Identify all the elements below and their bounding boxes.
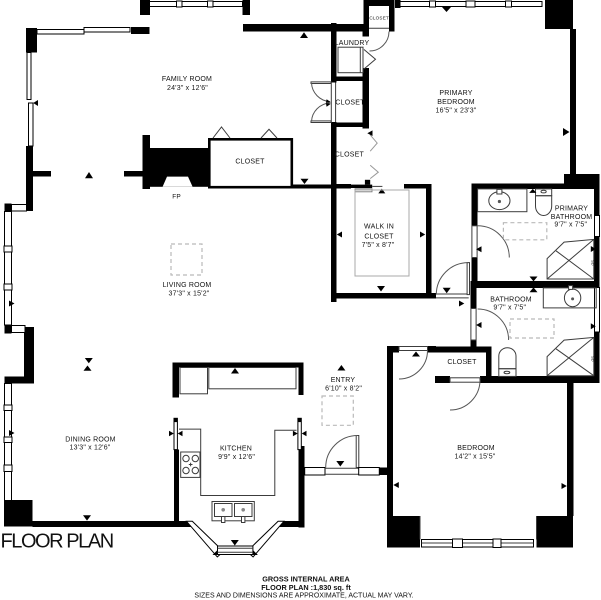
svg-text:CLOSET: CLOSET xyxy=(235,159,265,166)
svg-text:CLOSET: CLOSET xyxy=(335,151,365,158)
svg-text:SD: SD xyxy=(591,356,596,362)
svg-text:PRIMARY: PRIMARY xyxy=(439,90,472,97)
svg-text:LAUNDRY: LAUNDRY xyxy=(335,40,370,47)
svg-text:BEDROOM: BEDROOM xyxy=(437,99,475,106)
svg-text:CLOSET: CLOSET xyxy=(335,100,365,107)
svg-text:ENTRY: ENTRY xyxy=(331,377,356,384)
svg-text:9'7" x 7'5": 9'7" x 7'5" xyxy=(554,222,587,229)
svg-text:9'7" x 7'5": 9'7" x 7'5" xyxy=(493,304,526,311)
svg-text:BATHROOM: BATHROOM xyxy=(551,214,593,221)
svg-text:9'9" x 12'6": 9'9" x 12'6" xyxy=(218,454,255,461)
svg-text:37'3" x 15'2": 37'3" x 15'2" xyxy=(169,290,210,297)
svg-text:16'5" x 23'3": 16'5" x 23'3" xyxy=(436,108,477,115)
svg-text:WALK IN: WALK IN xyxy=(364,224,394,231)
svg-text:SIZES AND DIMENSIONS ARE APPRO: SIZES AND DIMENSIONS ARE APPROXIMATE, AC… xyxy=(194,593,413,600)
svg-text:FP: FP xyxy=(172,194,181,201)
svg-text:KITCHEN: KITCHEN xyxy=(220,446,252,453)
svg-text:14'2" x 15'5": 14'2" x 15'5" xyxy=(455,454,496,461)
svg-text:PRIMARY: PRIMARY xyxy=(555,206,588,213)
svg-text:BEDROOM: BEDROOM xyxy=(457,445,495,452)
svg-text:FLOOR PLAN: FLOOR PLAN xyxy=(1,531,113,553)
svg-text:LIVING ROOM: LIVING ROOM xyxy=(163,282,212,289)
svg-text:FLOOR PLAN :1,830 sq. ft: FLOOR PLAN :1,830 sq. ft xyxy=(261,583,351,592)
svg-text:6'10" x 8'2": 6'10" x 8'2" xyxy=(325,386,362,393)
svg-text:24'3" x 12'6": 24'3" x 12'6" xyxy=(167,85,208,92)
svg-text:FAMILY ROOM: FAMILY ROOM xyxy=(162,76,212,83)
svg-text:CLOSET: CLOSET xyxy=(364,234,394,241)
svg-text:BATHROOM: BATHROOM xyxy=(490,297,532,304)
svg-text:CLOSET: CLOSET xyxy=(369,16,389,21)
svg-text:13'3" x 12'6": 13'3" x 12'6" xyxy=(70,445,111,452)
svg-text:DINING ROOM: DINING ROOM xyxy=(65,436,115,443)
svg-text:7'5" x 8'7": 7'5" x 8'7" xyxy=(362,242,395,249)
svg-text:SD: SD xyxy=(591,260,596,266)
svg-text:CLOSET: CLOSET xyxy=(447,359,477,366)
